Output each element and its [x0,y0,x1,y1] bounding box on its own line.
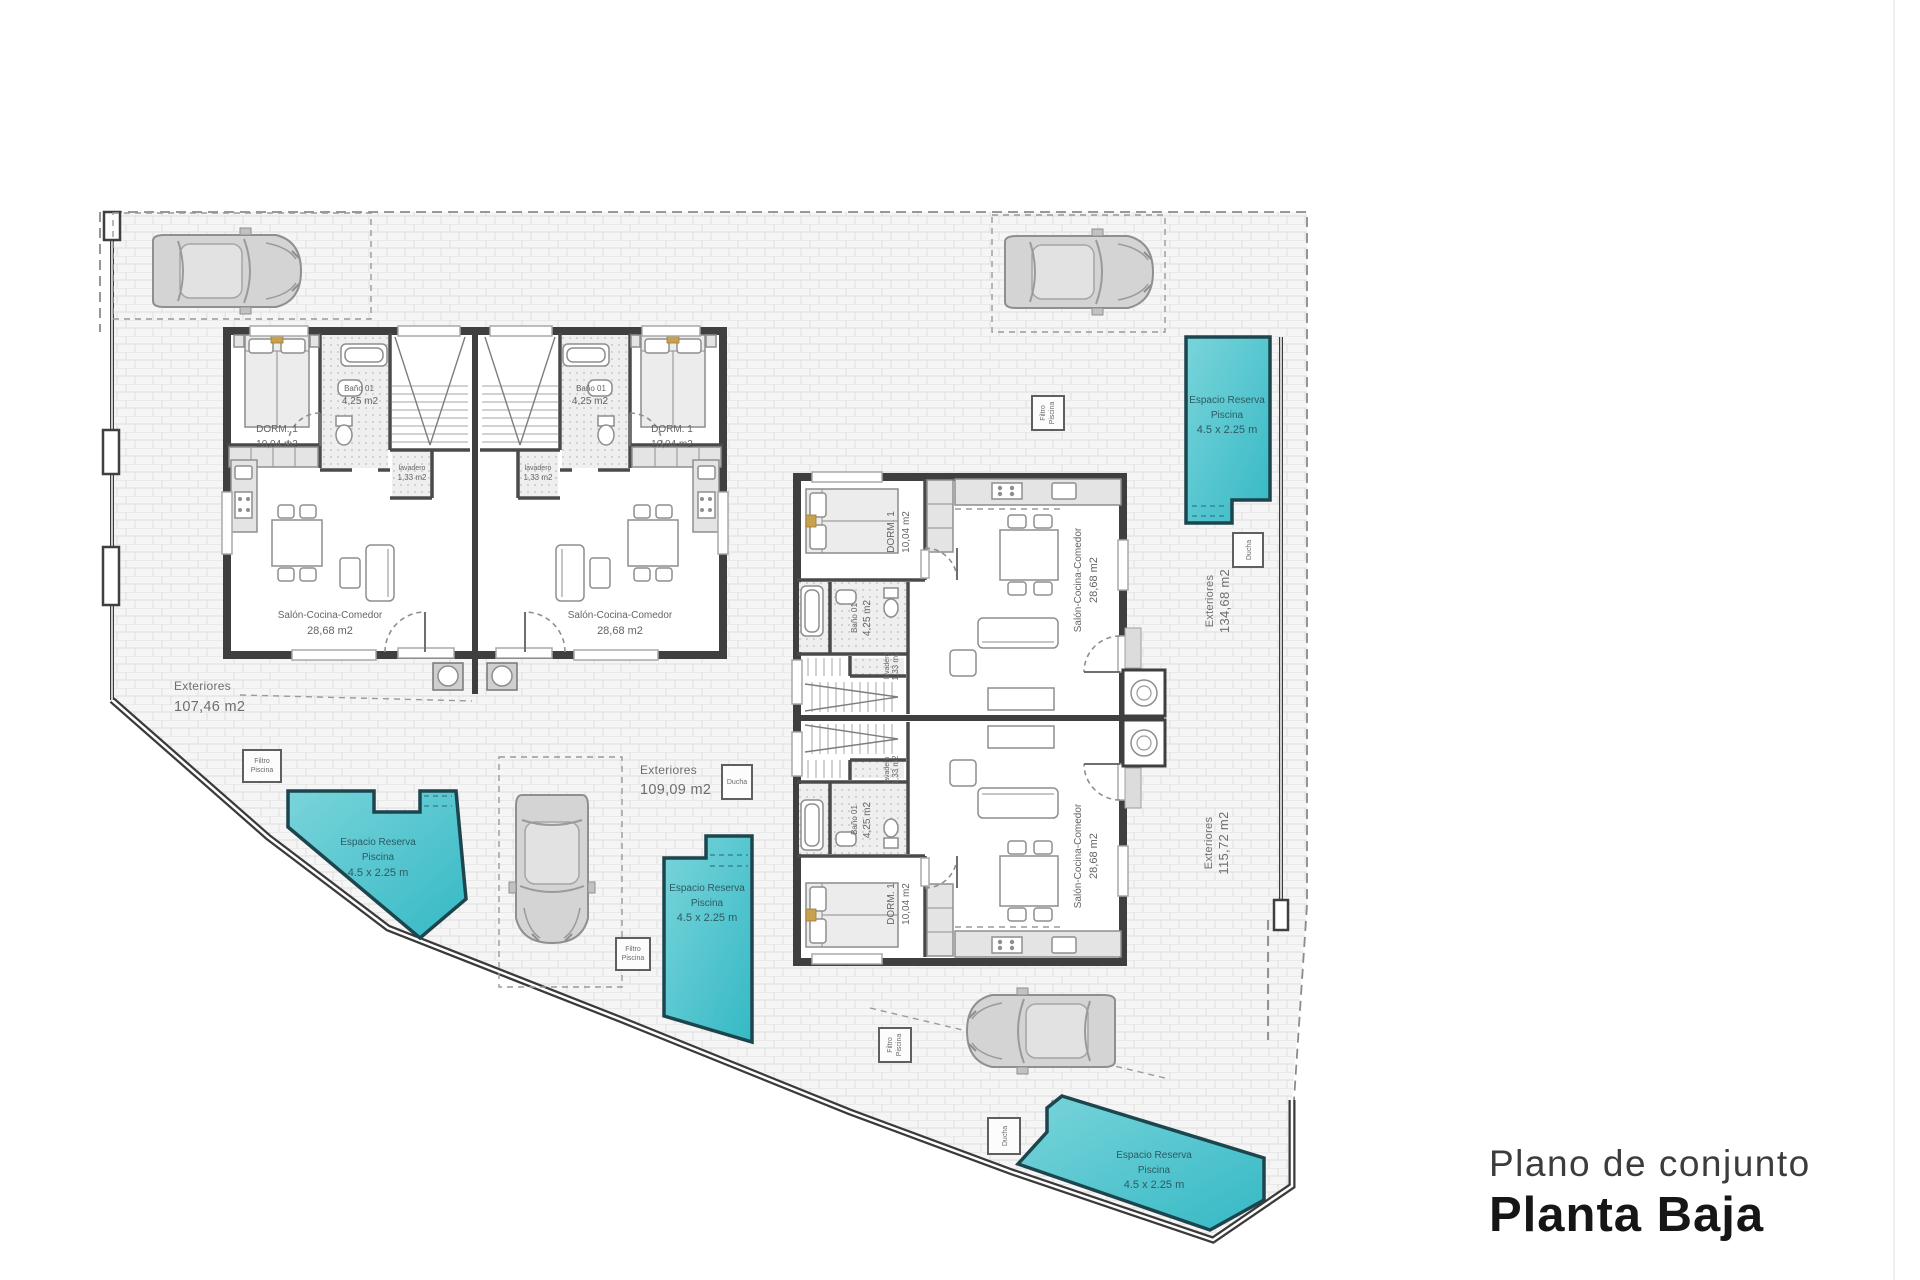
car-icon [153,228,301,314]
pool-label-line2: Piscina [1211,410,1244,421]
exteriores-center-label: Exteriores [640,763,697,777]
plan-title: Planta Baja [1489,1187,1811,1243]
shower-box: Ducha [722,765,752,799]
filter-label-line2: Piscina [622,955,645,962]
pool-filter-box: Filtro Piscina [879,1028,911,1062]
shower-label: Ducha [1246,540,1253,560]
unit-b-dorm-label: DORM. 1 [651,424,693,435]
unit-c-bano-area: 4,25 m2 [862,599,873,636]
pool-label-line2: Piscina [362,852,395,863]
unit-b-salon-area: 28,68 m2 [597,625,643,637]
unit-d-bano-label: Baño 01 [850,805,859,835]
unit-a-lavadero-area: 1,33 m2 [398,473,427,482]
pool-label-line3: 4.5 x 2.25 m [348,867,409,879]
pool-label-line3: 4.5 x 2.25 m [677,912,738,924]
filter-label-line2: Piscina [896,1034,903,1057]
kitchen-counter-icon [231,460,257,532]
page-edge-line [1893,0,1895,1280]
exteriores-left-area: 107,46 m2 [174,699,245,715]
unit-d-dorm-label: DORM. 1 [886,883,897,925]
bed-icon [806,489,898,553]
unit-b-salon-label: Salón-Cocina-Comedor [568,610,673,621]
shower-label: Ducha [1002,1126,1009,1146]
pool-reserve-middle: Espacio Reserva Piscina 4.5 x 2.25 m [664,836,752,1042]
pool-label-line1: Espacio Reserva [340,837,416,848]
unit-c-dorm-label: DORM. 1 [886,511,897,553]
window-top-stair [398,326,460,336]
unit-b-dorm-area: 10,04 m2 [651,439,693,450]
bed-icon [234,335,319,427]
unit-a-bano-area: 4,25 m2 [342,396,379,407]
left-building: DORM. 1 10,04 m2 Baño 01 4,25 m2 lavader… [222,326,728,694]
pool-label-line1: Espacio Reserva [1189,395,1265,406]
pool-label-line1: Espacio Reserva [669,883,745,894]
filter-label-line1: Filtro [1040,405,1047,421]
unit-b-bano-area: 4,25 m2 [572,396,609,407]
car-icon [1005,229,1153,315]
car-icon [509,795,595,943]
title-block: Plano de conjunto Planta Baja [1489,1143,1811,1243]
filter-label-line1: Filtro [254,758,270,765]
shower-label: Ducha [727,779,747,786]
floor-plan-page: Espacio Reserva Piscina 4.5 x 2.25 m Esp… [0,0,1920,1280]
car-icon [967,988,1115,1074]
exteriores-rightbottom-label: Exteriores [1203,817,1215,870]
unit-c-salon-area: 28,68 m2 [1088,557,1100,603]
left-gate-lower [103,547,119,605]
unit-c-lavadero-area: 1,33 m2 [891,651,900,680]
pool-label-line3: 4.5 x 2.25 m [1124,1179,1185,1191]
kitchen-counter-icon [955,479,1121,509]
unit-d-lavadero-area: 1,33 m2 [891,755,900,784]
pool-filter-box: Filtro Piscina [616,938,650,970]
window-right [1118,540,1128,590]
toilet-icon [884,588,898,617]
corner-jamb [104,212,120,240]
unit-a-salon-area: 28,68 m2 [307,625,353,637]
entry-slab [1125,628,1141,668]
unit-b-lavadero-label: lavadero [525,465,552,472]
exteriores-left-label: Exteriores [174,679,231,693]
filter-label-line2: Piscina [1049,402,1056,425]
bathtub-icon [801,586,823,636]
unit-d-salon-area: 28,68 m2 [1088,833,1100,879]
bedroom-door-opening [921,550,929,578]
unit-a-lavadero-label: lavadero [399,465,426,472]
pool-label-line1: Espacio Reserva [1116,1150,1192,1161]
window-side [222,492,232,554]
unit-c-lavadero-label: lavadero [884,652,891,679]
unit-a-dorm-label: DORM. 1 [256,424,298,435]
unit-d-salon-label: Salón-Cocina-Comedor [1073,803,1084,908]
wardrobe-icon [927,480,953,552]
filter-label-line2: Piscina [251,767,274,774]
pool-label-line3: 4.5 x 2.25 m [1197,424,1258,436]
pool-filter-box: Filtro Piscina [243,750,281,782]
exteriores-rightbottom-area: 115,72 m2 [1216,811,1231,874]
window-bottom [292,650,376,660]
unit-c-dorm-area: 10,04 m2 [901,511,912,553]
exteriores-righttop-label: Exteriores [1204,575,1216,628]
exteriores-righttop-area: 134,68 m2 [1217,569,1232,633]
right-building: DORM. 1 10,04 m2 Baño 01 4,25 m2 lavader… [792,472,1165,964]
unit-d-lavadero-label: lavadero [884,756,891,783]
unit-a-salon-label: Salón-Cocina-Comedor [278,610,383,621]
unit-d-bano-area: 4,25 m2 [862,801,873,838]
window-top [812,472,882,482]
shower-box: Ducha [1233,533,1263,567]
pool-shape [664,836,752,1042]
pool-label-line2: Piscina [1138,1165,1171,1176]
unit-b-bano-label: Baño 01 [576,384,606,393]
washer-niche [1123,670,1165,716]
exteriores-center-area: 109,09 m2 [640,782,711,798]
pool-label-line2: Piscina [691,898,724,909]
toilet-icon [336,416,352,445]
unit-d-dorm-area: 10,04 m2 [901,883,912,925]
unit-c-salon-label: Salón-Cocina-Comedor [1073,527,1084,632]
unit-a-bano-label: Baño 01 [344,384,374,393]
unit-b-lavadero-area: 1,33 m2 [524,473,553,482]
bathtub-icon [341,344,387,366]
right-jamb [1274,900,1288,930]
unit-a-dorm-area: 10,04 m2 [256,439,298,450]
left-gate-upper [103,430,119,474]
window-top-bedroom [250,326,308,336]
pool-reserve-topright: Espacio Reserva Piscina 4.5 x 2.25 m [1186,337,1270,523]
pool-filter-box: Filtro Piscina [1032,396,1064,430]
unit-c-bano-label: Baño 01 [850,603,859,633]
filter-label-line1: Filtro [625,946,641,953]
filter-label-line1: Filtro [887,1037,894,1053]
shower-box: Ducha [988,1118,1020,1154]
washbasin-icon [836,590,856,604]
plan-subtitle: Plano de conjunto [1489,1143,1811,1185]
window-stair [792,660,802,704]
site-plan-svg: Espacio Reserva Piscina 4.5 x 2.25 m Esp… [0,0,1920,1280]
